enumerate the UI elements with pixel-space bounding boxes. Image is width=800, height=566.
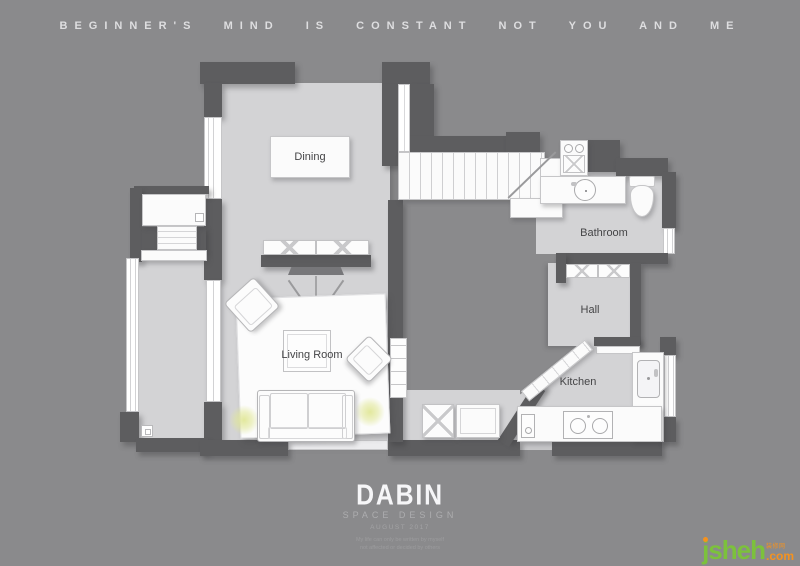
floor-plan-poster: BEGINNER'S MIND IS CONSTANT NOT YOU AND … bbox=[0, 0, 800, 566]
brand-subtitle: SPACE DESIGN bbox=[0, 510, 800, 520]
wall-segment bbox=[594, 337, 640, 346]
fine-print-line1: My life can only be written by myself bbox=[0, 536, 800, 544]
floor-lamp-glow bbox=[355, 397, 385, 427]
staircase bbox=[398, 152, 545, 200]
wall-segment bbox=[136, 438, 208, 452]
wall-segment bbox=[586, 140, 620, 172]
floor-balcony bbox=[138, 256, 206, 440]
wall-segment bbox=[204, 199, 222, 280]
footer: DABIN SPACE DESIGN AUGUST 2017 My life c… bbox=[0, 482, 800, 553]
room-label-kitchen: Kitchen bbox=[560, 376, 597, 388]
wall-segment bbox=[506, 132, 540, 152]
window-bathroom bbox=[663, 228, 675, 254]
wall-segment bbox=[142, 227, 157, 251]
wall-segment bbox=[388, 200, 403, 442]
fine-print: My life can only be written by myself no… bbox=[0, 536, 800, 553]
wall-segment bbox=[616, 158, 668, 176]
room-label-living-room: Living Room bbox=[281, 349, 342, 361]
wall-segment bbox=[204, 402, 222, 442]
floor-drain bbox=[141, 425, 153, 437]
hall-shoe-cabinet bbox=[566, 264, 630, 278]
hallway-cabinet bbox=[390, 338, 407, 398]
stair-railing bbox=[398, 84, 410, 152]
fine-print-line2: not affected or decided by others bbox=[0, 544, 800, 552]
dresser-base bbox=[141, 250, 207, 261]
wall-segment bbox=[410, 84, 434, 136]
bathroom-sink bbox=[574, 179, 596, 201]
wall-segment bbox=[382, 62, 430, 84]
utility-cabinet bbox=[456, 404, 500, 438]
wall-segment bbox=[134, 186, 209, 194]
watermark-dot-icon bbox=[703, 537, 708, 542]
kitchen-small-appliance bbox=[521, 414, 535, 438]
room-label-hall: Hall bbox=[581, 304, 600, 316]
room-label-dining: Dining bbox=[294, 151, 325, 163]
wall-segment bbox=[398, 136, 508, 152]
wall-segment bbox=[556, 253, 668, 264]
tv-feature-wall bbox=[261, 255, 371, 267]
room-label-bathroom: Bathroom bbox=[580, 227, 628, 239]
sofa bbox=[257, 390, 355, 442]
floor-lamp-glow bbox=[229, 405, 259, 435]
wall-segment bbox=[630, 263, 641, 345]
washing-machine bbox=[422, 404, 454, 438]
brand-title: DABIN bbox=[32, 481, 768, 509]
wall-segment bbox=[552, 440, 662, 456]
stove bbox=[563, 411, 613, 439]
bathroom-faucet bbox=[571, 182, 577, 186]
balcony-sliding-door bbox=[206, 280, 221, 402]
wall-segment bbox=[382, 84, 398, 166]
kitchen-sink bbox=[637, 360, 660, 398]
wall-segment bbox=[662, 172, 676, 228]
watermark: jsheh 装修网 .com bbox=[702, 539, 794, 562]
wall-segment bbox=[200, 440, 288, 456]
wall-segment bbox=[204, 83, 222, 117]
water-heater bbox=[560, 140, 588, 176]
stool bbox=[157, 226, 197, 250]
watermark-site-name: jsheh bbox=[702, 539, 765, 562]
wall-segment bbox=[388, 440, 520, 456]
window-kitchen bbox=[664, 355, 676, 417]
wall-segment bbox=[200, 62, 295, 84]
brand-date: AUGUST 2017 bbox=[0, 524, 800, 531]
dresser-handle bbox=[195, 213, 204, 222]
tv bbox=[288, 267, 344, 275]
tv-cabinet bbox=[263, 240, 369, 255]
window-balcony bbox=[126, 258, 139, 412]
wall-segment bbox=[556, 253, 566, 283]
watermark-suffix: .com bbox=[766, 550, 794, 562]
